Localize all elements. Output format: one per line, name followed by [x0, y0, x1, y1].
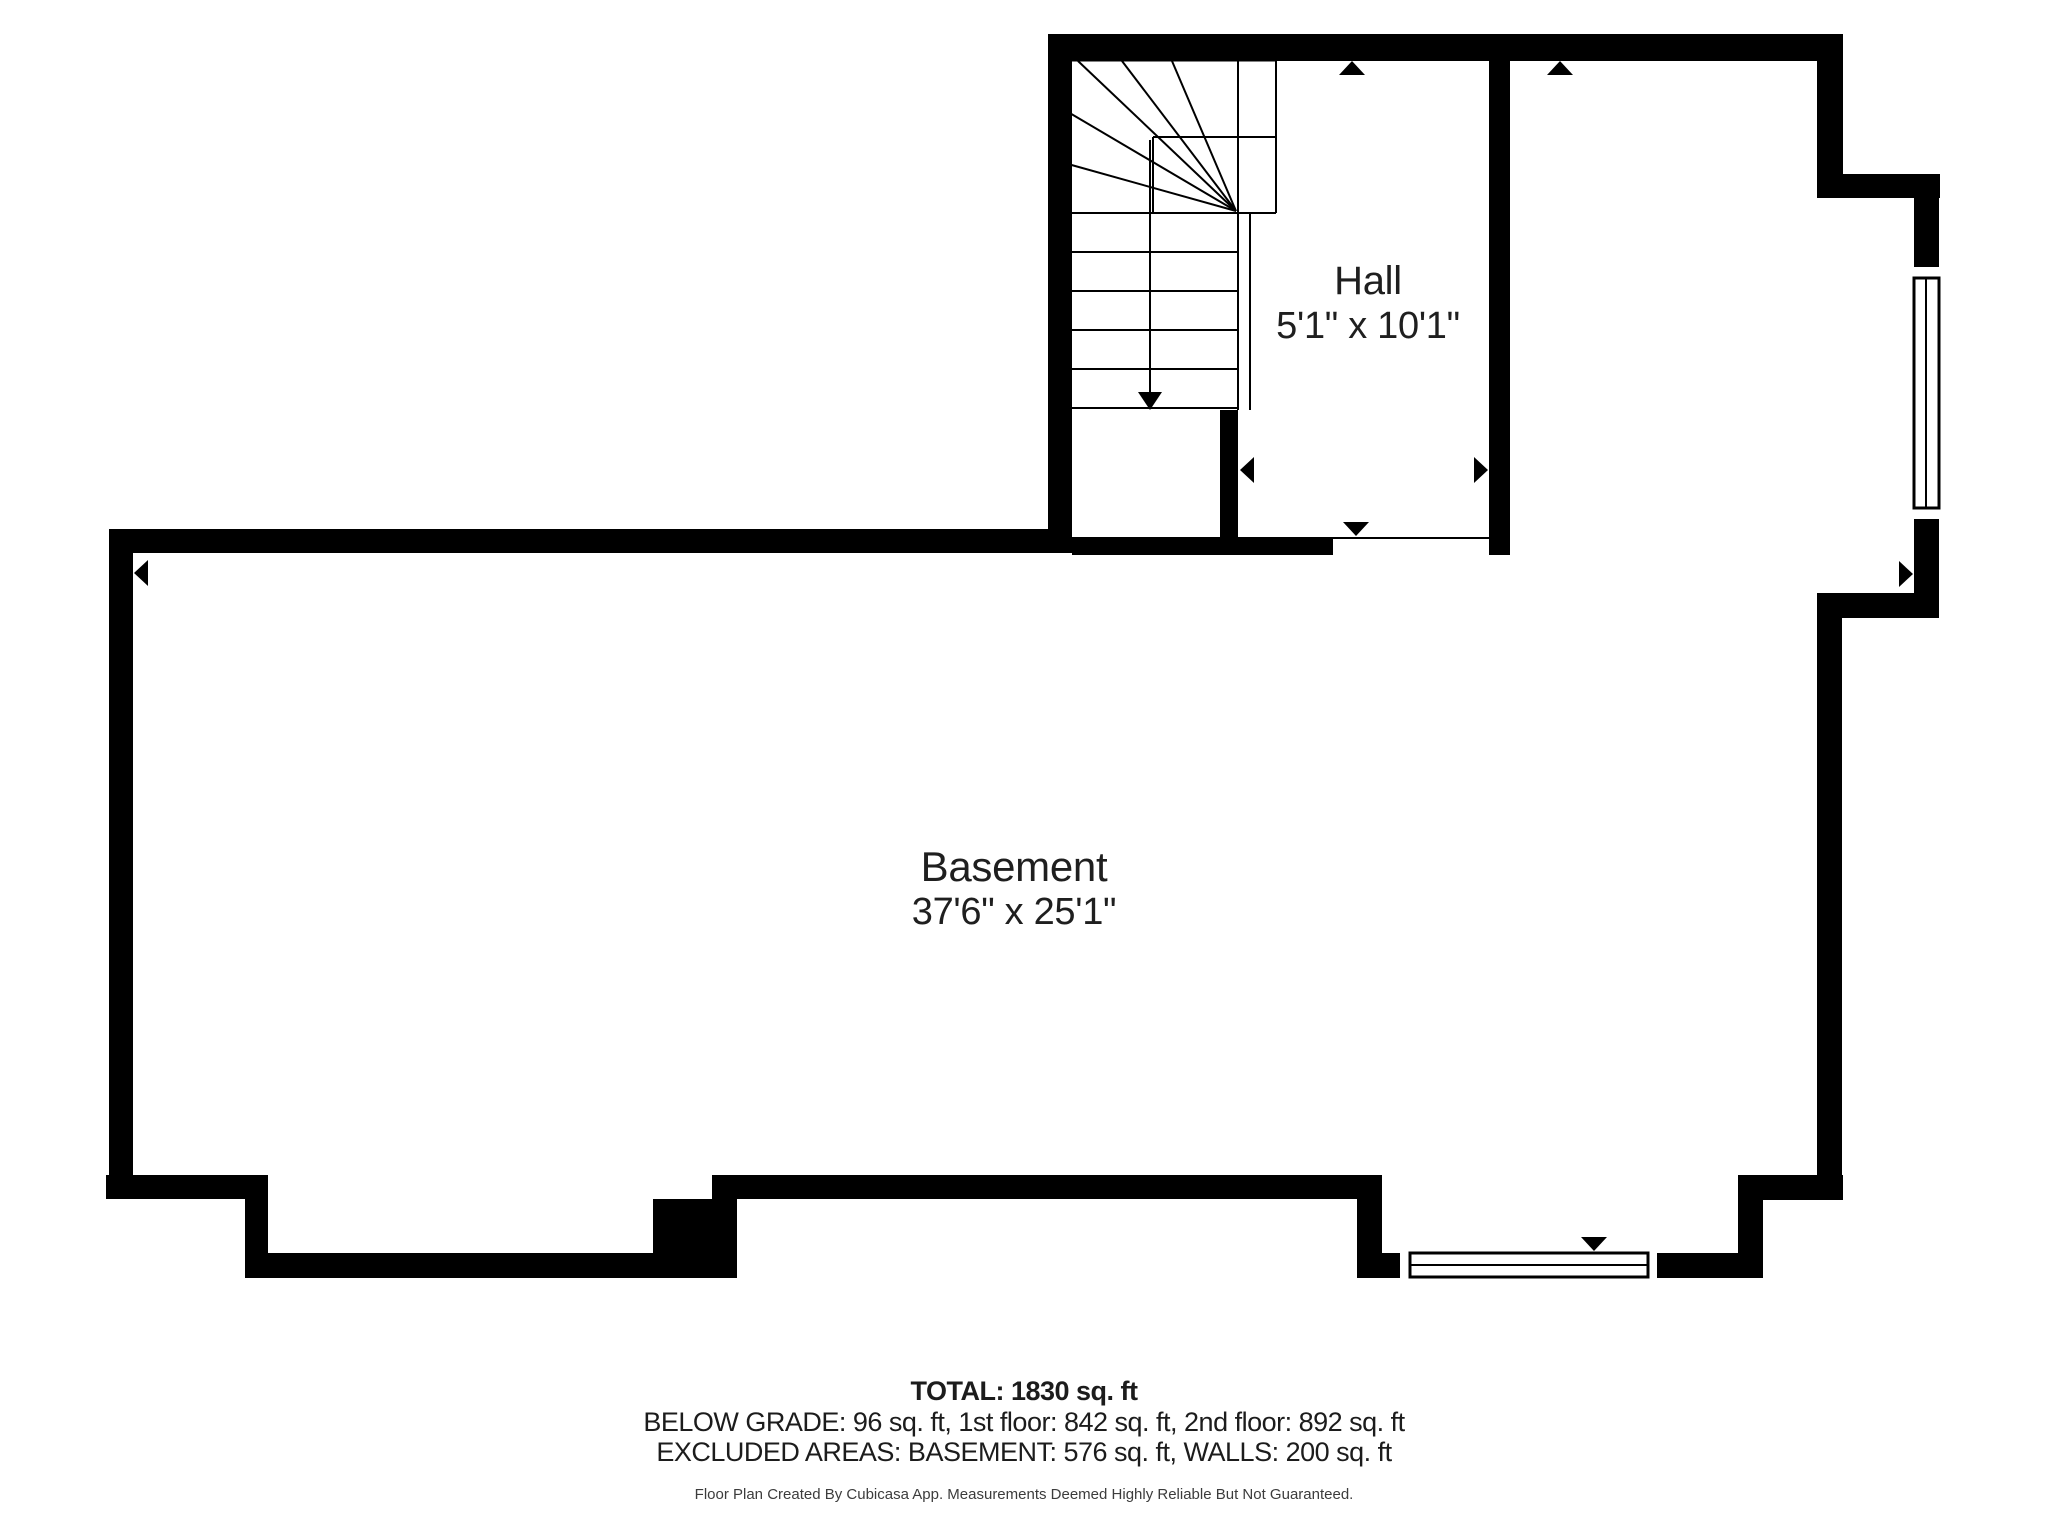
bottom-wall-middle — [712, 1175, 1382, 1199]
footer-total-area: TOTAL: 1830 sq. ft — [0, 1376, 2048, 1407]
footer-floor-areas: BELOW GRADE: 96 sq. ft, 1st floor: 842 s… — [0, 1407, 2048, 1438]
room-dimensions: 37'6" x 25'1" — [912, 890, 1117, 934]
room-name: Basement — [912, 844, 1117, 890]
hall-right-wall — [1489, 34, 1510, 555]
right-wall-above-window — [1914, 198, 1939, 267]
basement-right-wall — [1817, 593, 1842, 1200]
floor-plan-page: Hall 5'1" x 10'1" Basement 37'6" x 25'1"… — [0, 0, 2048, 1536]
basement-left-wall — [109, 529, 133, 1199]
hall-width-arrow-left — [1240, 457, 1254, 483]
top-wall — [1048, 34, 1843, 61]
footer-excluded-areas: EXCLUDED AREAS: BASEMENT: 576 sq. ft, WA… — [0, 1437, 2048, 1468]
room-dimensions: 5'1" x 10'1" — [1276, 304, 1460, 348]
bottom-wall-window-left — [1382, 1253, 1400, 1278]
stair-hall-divider-wall — [1220, 410, 1238, 555]
bottom-wall-left — [106, 1175, 267, 1199]
basement-width-arrow-right — [1899, 561, 1913, 587]
upper-step-wall — [1817, 174, 1940, 198]
upper-right-corner-wall — [1817, 34, 1843, 198]
hall-height-arrow-top — [1339, 61, 1365, 75]
hall-height-arrow-bottom — [1343, 522, 1369, 536]
basement-top-wall — [109, 529, 1072, 553]
bottom-right-ledge-wall — [1738, 1175, 1843, 1200]
hall-width-arrow-right — [1474, 457, 1488, 483]
basement-width-arrow-left — [134, 560, 148, 586]
basement-height-arrow-top — [1547, 61, 1573, 75]
room-name: Hall — [1276, 258, 1460, 304]
bottom-step-wall-middle — [1357, 1175, 1382, 1278]
hall-bottom-wall — [1072, 537, 1333, 555]
room-label-hall: Hall 5'1" x 10'1" — [1276, 258, 1460, 348]
floor-plan-drawing — [0, 0, 2048, 1536]
room-label-basement: Basement 37'6" x 25'1" — [912, 844, 1117, 934]
basement-height-arrow-bottom — [1581, 1237, 1607, 1251]
footer-disclaimer: Floor Plan Created By Cubicasa App. Meas… — [0, 1486, 2048, 1503]
bottom-wall-block — [653, 1199, 737, 1278]
